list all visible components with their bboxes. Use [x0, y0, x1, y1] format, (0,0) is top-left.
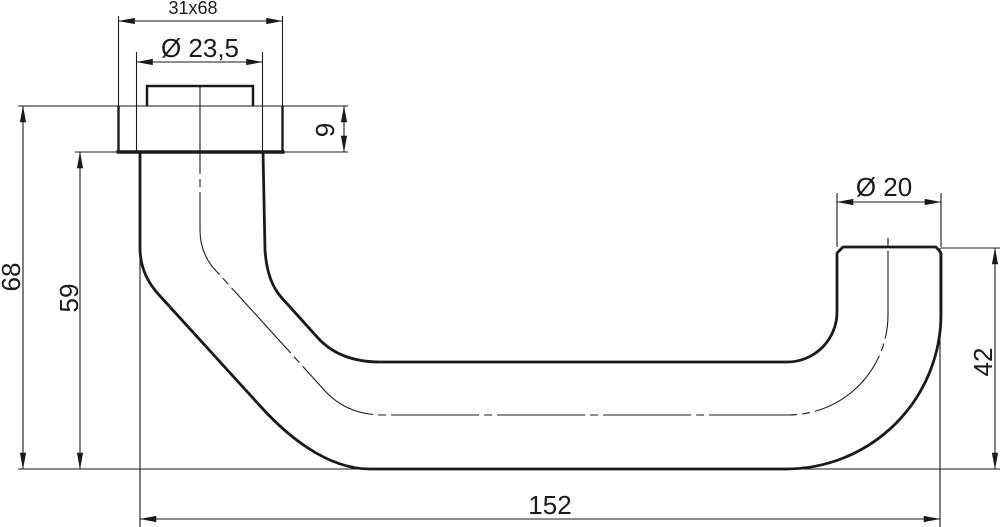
overall-height-label: 68 — [0, 263, 26, 292]
handle-centerline — [200, 86, 888, 415]
plate-size-label: 31x68 — [168, 0, 217, 18]
rose-diameter-label: Ø 23,5 — [161, 33, 239, 63]
overall-length-label: 152 — [528, 490, 571, 520]
lever-handle-profile — [140, 152, 941, 469]
plate-thickness-label: 9 — [310, 123, 340, 137]
neck-height-label: 59 — [54, 284, 84, 313]
grip-diameter-label: Ø 20 — [856, 172, 912, 202]
end-height-label: 42 — [968, 348, 998, 377]
technical-drawing-canvas: 31x68 Ø 23,5 9 68 59 Ø 20 42 152 — [0, 0, 1000, 527]
dimension-labels: 31x68 Ø 23,5 9 68 59 Ø 20 42 152 — [0, 0, 998, 520]
centerlines — [200, 86, 888, 415]
handle-outline — [140, 152, 941, 469]
door-handle-technical-drawing: 31x68 Ø 23,5 9 68 59 Ø 20 42 152 — [0, 0, 1000, 527]
extension-lines — [18, 16, 1000, 527]
dimension-lines — [23, 21, 995, 519]
